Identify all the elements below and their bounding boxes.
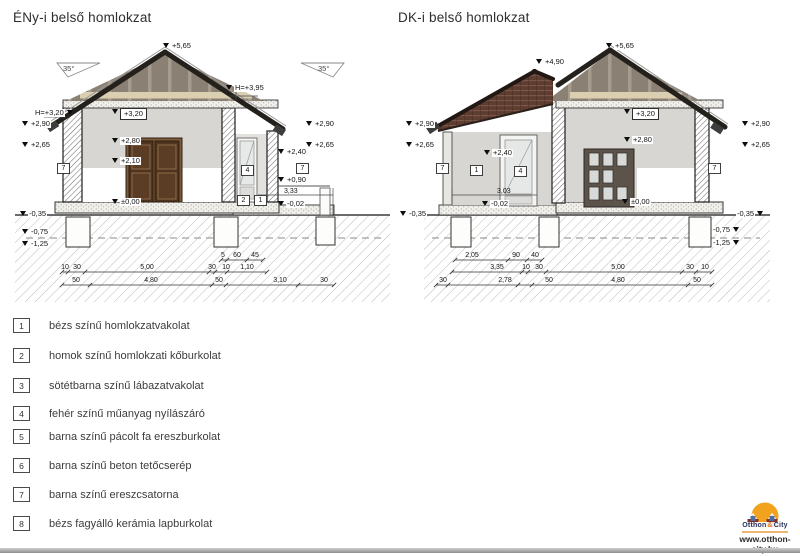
level-marker-icon <box>163 43 169 48</box>
level-label: +5,65 <box>606 42 635 50</box>
level-label: +2,40 <box>484 149 513 157</box>
dim-label: 10 <box>701 264 709 271</box>
level-marker-icon <box>278 177 284 182</box>
dim-label: 3,03 <box>497 188 511 195</box>
level-marker-icon <box>226 85 232 90</box>
level-marker-icon <box>22 229 28 234</box>
level-marker-icon <box>406 121 412 126</box>
keynote-box: 4 <box>514 166 527 177</box>
dim-label: 5,00 <box>611 264 625 271</box>
level-label: +5,65 <box>163 42 192 50</box>
dim-label: 50 <box>72 277 80 284</box>
level-label: -0,35 <box>20 210 47 218</box>
level-marker-icon <box>606 43 612 48</box>
dim-label: 30 <box>73 264 81 271</box>
legend-item: 8bézs fagyálló kerámia lapburkolat <box>13 516 212 531</box>
dim-label: 10 <box>522 264 530 271</box>
keynote-box: 2 <box>237 195 250 206</box>
bottom-divider-bar <box>0 548 800 553</box>
level-label: +2,65 <box>406 141 435 149</box>
legend-item-label: homok színű homlokzati kőburkolat <box>49 350 221 362</box>
level-marker-icon <box>622 199 628 204</box>
level-marker-icon <box>400 211 406 216</box>
level-label: -0,75 <box>712 226 739 234</box>
level-marker-icon <box>482 201 488 206</box>
level-label: -0,02 <box>482 200 509 208</box>
keynote-box: 1 <box>13 318 30 333</box>
level-marker-icon <box>306 121 312 126</box>
level-label: +2,90 <box>406 120 435 128</box>
level-label: -1,25 <box>22 240 49 248</box>
level-label: -0,02 <box>278 200 305 208</box>
level-label: +2,90 <box>22 120 51 128</box>
dim-label: 10 <box>61 264 69 271</box>
dim-label: 1,10 <box>240 264 254 271</box>
level-label: +2,10 <box>112 157 141 165</box>
level-label: +2,90 <box>742 120 771 128</box>
dim-label: 30 <box>320 277 328 284</box>
legend-item-label: barna színű beton tetőcserép <box>49 460 191 472</box>
level-marker-icon <box>112 138 118 143</box>
dim-label: 50 <box>545 277 553 284</box>
level-label: +2,40 <box>278 148 307 156</box>
level-label: ±0,00 <box>112 198 141 206</box>
level-marker-icon <box>306 142 312 147</box>
level-marker-icon <box>278 149 284 154</box>
dim-label: 3,33 <box>284 188 298 195</box>
dim-label: 4,80 <box>144 277 158 284</box>
dim-label: 90 <box>512 252 520 259</box>
keynote-box: 3 <box>13 378 30 393</box>
logo-tagline <box>742 531 788 533</box>
dim-label: 30 <box>535 264 543 271</box>
legend-item: 6barna színű beton tetőcserép <box>13 458 191 473</box>
level-label: +2,65 <box>306 141 335 149</box>
otthon-city-logo: Otthon&City www.otthon-city.hu <box>734 501 796 538</box>
dim-label: 3,35 <box>490 264 504 271</box>
boxed-level-label: +3,20 <box>624 108 659 120</box>
level-label: +2,65 <box>742 141 771 149</box>
level-marker-icon <box>733 227 739 232</box>
drawing-sheet: ÉNy-i belső homlokzat DK-i belső homlokz… <box>0 0 800 556</box>
dim-label: 50 <box>693 277 701 284</box>
level-marker-icon <box>757 211 763 216</box>
level-label: +2,90 <box>306 120 335 128</box>
dim-label: 10 <box>222 264 230 271</box>
keynote-box: 4 <box>241 165 254 176</box>
level-marker-icon <box>406 142 412 147</box>
keynote-box: 6 <box>13 458 30 473</box>
keynote-box: 7 <box>296 163 309 174</box>
keynote-box: 7 <box>57 163 70 174</box>
boxed-level-label: +3,20 <box>112 108 147 120</box>
dim-label: 40 <box>531 252 539 259</box>
keynote-box: 8 <box>13 516 30 531</box>
level-label: -0,75 <box>22 228 49 236</box>
dim-label: 2,05 <box>465 252 479 259</box>
dim-label: 30 <box>686 264 694 271</box>
level-marker-icon <box>536 59 542 64</box>
level-marker-icon <box>22 121 28 126</box>
keynote-box: 7 <box>708 163 721 174</box>
level-marker-icon <box>22 142 28 147</box>
legend-item: 4fehér színű műanyag nyílászáró <box>13 406 205 421</box>
legend-item-label: bézs fagyálló kerámia lapburkolat <box>49 518 212 530</box>
legend-item: 5barna színű pácolt fa ereszburkolat <box>13 429 220 444</box>
dim-label: 4,80 <box>611 277 625 284</box>
legend-item-label: bézs színű homlokzatvakolat <box>49 320 190 332</box>
level-label: +0,90 <box>278 176 307 184</box>
level-label: ±0,00 <box>622 198 651 206</box>
legend-item-label: sötétbarna színű lábazatvakolat <box>49 380 204 392</box>
level-marker-icon <box>278 201 284 206</box>
level-label: +4,90 <box>536 58 565 66</box>
level-label: H=+3,95 <box>226 84 265 92</box>
logo-wordmark: Otthon&City <box>734 522 796 529</box>
dim-label: 30 <box>439 277 447 284</box>
level-label: +2,80 <box>112 137 141 145</box>
level-label: +2,65 <box>22 141 51 149</box>
legend-item: 7barna színű ereszcsatorna <box>13 487 179 502</box>
level-marker-icon <box>20 211 26 216</box>
legend-item-label: barna színű ereszcsatorna <box>49 489 179 501</box>
dim-label: 45 <box>251 252 259 259</box>
level-marker-icon <box>624 109 630 114</box>
legend-item: 2homok színű homlokzati kőburkolat <box>13 348 221 363</box>
legend-item: 3sötétbarna színű lábazatvakolat <box>13 378 204 393</box>
dim-label: 5,00 <box>140 264 154 271</box>
level-label: H=+3,20 <box>34 109 73 117</box>
dim-label: 60 <box>233 252 241 259</box>
level-marker-icon <box>112 109 118 114</box>
dim-label: 2,78 <box>498 277 512 284</box>
keynote-box: 7 <box>436 163 449 174</box>
dim-label: 30 <box>208 264 216 271</box>
level-marker-icon <box>733 240 739 245</box>
keynote-box: 5 <box>13 429 30 444</box>
keynote-box: 7 <box>13 487 30 502</box>
legend-item-label: fehér színű műanyag nyílászáró <box>49 408 205 420</box>
level-label: -0,35 <box>736 210 763 218</box>
level-marker-icon <box>742 121 748 126</box>
keynote-box: 1 <box>254 195 267 206</box>
level-label: -1,25 <box>712 239 739 247</box>
keynote-box: 2 <box>13 348 30 363</box>
level-label: +2,80 <box>624 136 653 144</box>
level-marker-icon <box>112 199 118 204</box>
level-marker-icon <box>624 137 630 142</box>
level-marker-icon <box>484 150 490 155</box>
legend-item-label: barna színű pácolt fa ereszburkolat <box>49 431 220 443</box>
level-marker-icon <box>67 110 73 115</box>
keynote-box: 1 <box>470 165 483 176</box>
level-marker-icon <box>112 158 118 163</box>
keynote-box: 4 <box>13 406 30 421</box>
dim-label: 50 <box>215 277 223 284</box>
level-marker-icon <box>22 241 28 246</box>
dim-label: 5 <box>221 252 225 259</box>
level-marker-icon <box>742 142 748 147</box>
legend-item: 1bézs színű homlokzatvakolat <box>13 318 190 333</box>
level-label: -0,35 <box>400 210 427 218</box>
dim-label: 3,10 <box>273 277 287 284</box>
